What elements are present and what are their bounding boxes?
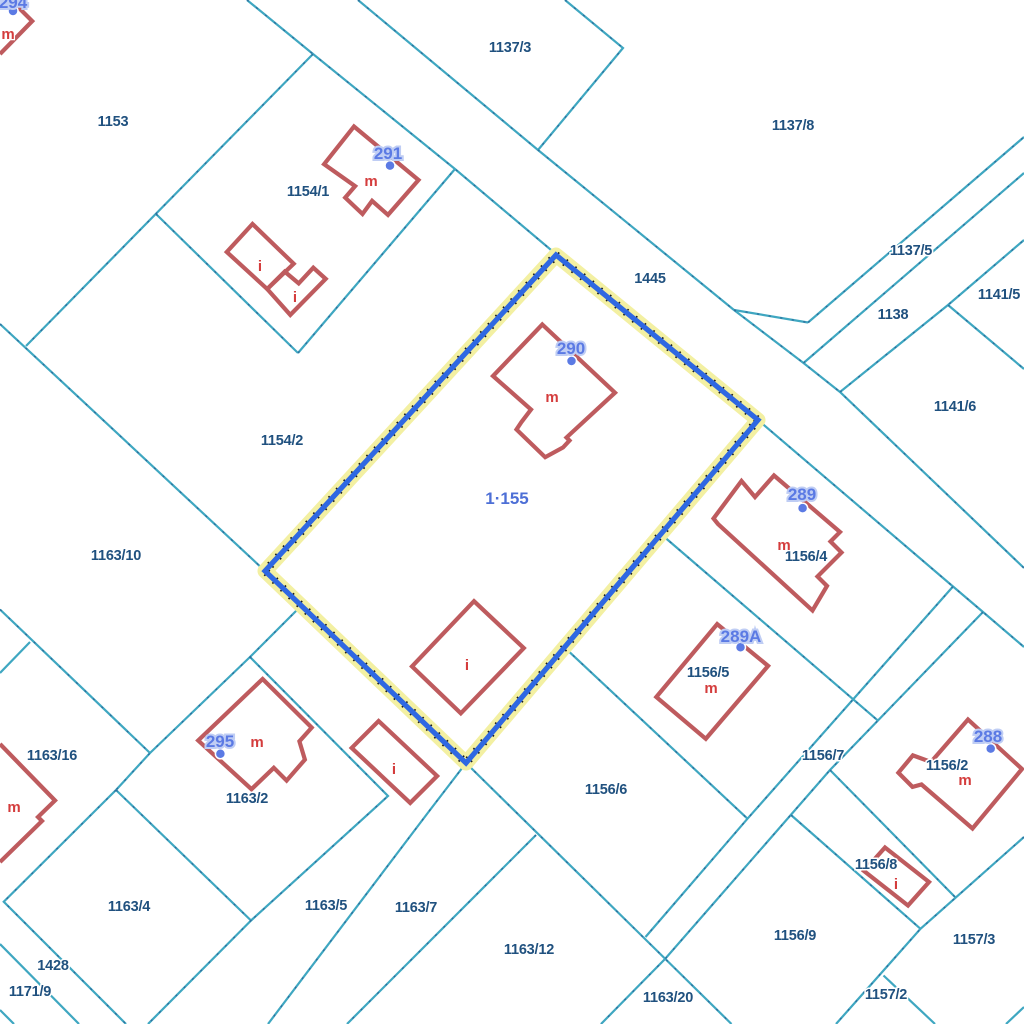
svg-text:m: m: [364, 173, 377, 190]
svg-text:1428: 1428: [37, 958, 69, 974]
svg-text:1163/16: 1163/16: [27, 748, 77, 764]
svg-text:1157/3: 1157/3: [953, 932, 995, 948]
svg-text:1141/5: 1141/5: [978, 287, 1020, 303]
svg-text:m: m: [1, 26, 14, 43]
svg-text:1137/5: 1137/5: [890, 243, 932, 259]
svg-text:1163/10: 1163/10: [91, 548, 141, 564]
svg-text:1163/4: 1163/4: [108, 899, 150, 915]
svg-text:1163/20: 1163/20: [643, 990, 693, 1006]
svg-text:m: m: [250, 734, 263, 751]
svg-text:295: 295: [206, 732, 234, 751]
svg-text:1156/7: 1156/7: [802, 748, 844, 764]
svg-text:1141/6: 1141/6: [934, 399, 976, 415]
svg-text:291: 291: [374, 144, 402, 163]
svg-text:1163/12: 1163/12: [504, 942, 554, 958]
svg-text:m: m: [7, 799, 20, 816]
svg-text:1137/8: 1137/8: [772, 118, 814, 134]
svg-text:1·155: 1·155: [485, 489, 528, 508]
svg-text:1163/7: 1163/7: [395, 900, 437, 916]
svg-text:1137/3: 1137/3: [489, 40, 531, 56]
svg-text:i: i: [465, 657, 469, 674]
svg-text:288: 288: [974, 727, 1002, 746]
svg-text:289: 289: [788, 485, 816, 504]
svg-text:294: 294: [0, 0, 28, 12]
svg-text:m: m: [958, 772, 971, 789]
svg-text:1154/2: 1154/2: [261, 433, 303, 449]
svg-text:1156/5: 1156/5: [687, 665, 729, 681]
svg-text:1163/2: 1163/2: [226, 791, 268, 807]
svg-text:289A: 289A: [721, 627, 762, 646]
svg-text:1154/1: 1154/1: [287, 184, 329, 200]
svg-text:i: i: [258, 258, 262, 275]
svg-text:1156/8: 1156/8: [855, 857, 897, 873]
svg-text:1153: 1153: [98, 114, 129, 130]
svg-text:1156/6: 1156/6: [585, 782, 627, 798]
svg-text:1138: 1138: [878, 307, 909, 323]
svg-text:i: i: [392, 761, 396, 778]
svg-text:290: 290: [557, 339, 585, 358]
svg-text:1157/2: 1157/2: [865, 987, 907, 1003]
svg-text:1171/9: 1171/9: [9, 984, 51, 1000]
svg-text:i: i: [293, 289, 297, 306]
svg-text:m: m: [777, 537, 790, 554]
svg-text:1156/4: 1156/4: [785, 549, 827, 565]
svg-text:m: m: [704, 680, 717, 697]
svg-text:1156/9: 1156/9: [774, 928, 816, 944]
svg-text:m: m: [545, 389, 558, 406]
svg-text:1163/5: 1163/5: [305, 898, 347, 914]
svg-text:i: i: [894, 876, 898, 893]
svg-text:1445: 1445: [634, 271, 666, 287]
